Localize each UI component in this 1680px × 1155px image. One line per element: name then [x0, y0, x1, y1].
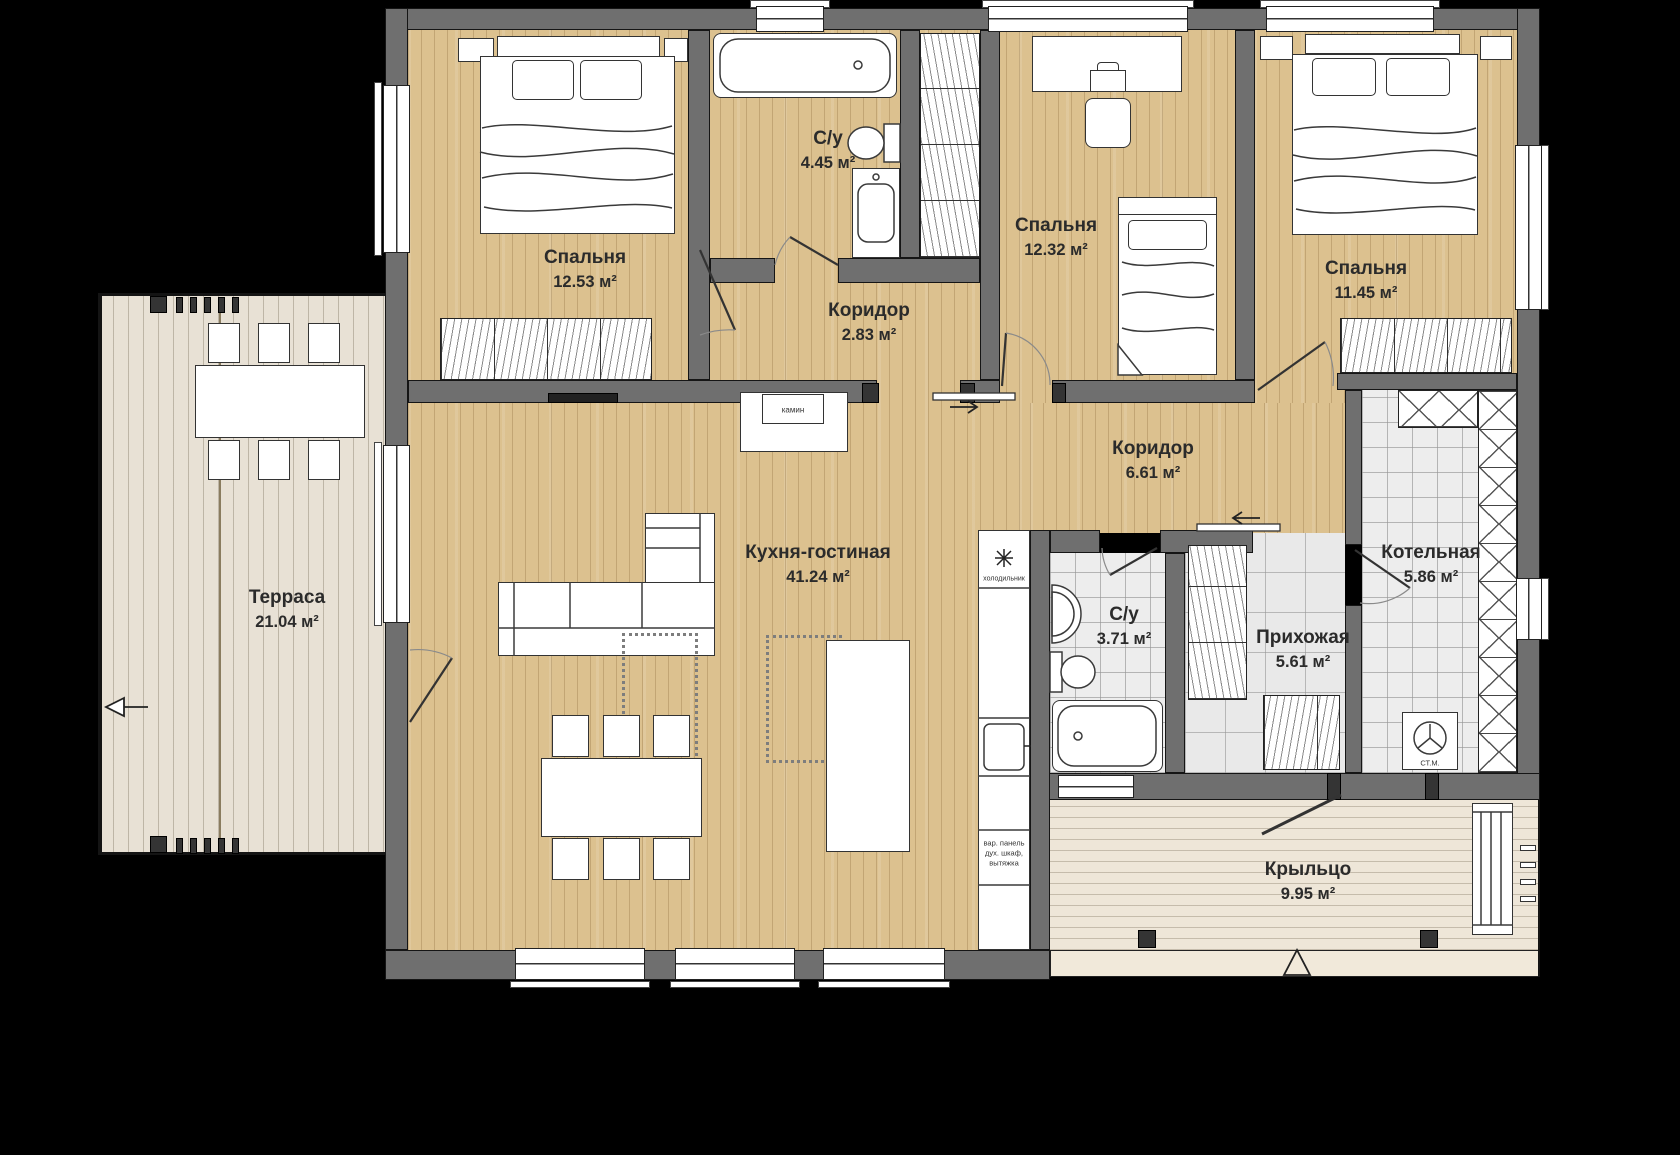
bed-headboard: [1118, 197, 1217, 215]
terrace-baluster: [176, 838, 183, 854]
window-living-south-1: [515, 948, 645, 980]
hallway-cabinet: [1263, 695, 1340, 770]
terrace-chair: [308, 323, 340, 363]
wall-bedroom3-south: [1337, 373, 1517, 390]
room-label-hallway: Прихожая 5.61 м²: [1256, 625, 1350, 673]
terrace-chair: [258, 440, 290, 480]
nightstand: [1480, 36, 1512, 60]
terrace-edge-left: [98, 293, 102, 855]
kitchen-living-floor: [408, 403, 1030, 950]
terrace-baluster: [204, 838, 211, 854]
dining-chair: [603, 838, 640, 880]
hallway-wardrobe: [1188, 545, 1247, 700]
wall-post: [1327, 773, 1341, 800]
wall-bathroom-top-south-b: [838, 258, 980, 283]
porch-post: [1138, 930, 1156, 948]
boiler-equipment-zone: [1398, 390, 1478, 428]
pillow: [580, 60, 642, 100]
room-label-corridor-main: Коридор 6.61 м²: [1112, 436, 1194, 484]
window-living-south-3: [823, 948, 945, 980]
pillow: [512, 60, 574, 100]
porch-step-mark: [1520, 862, 1536, 868]
porch-stairs: [1472, 803, 1513, 935]
terrace-chair: [308, 440, 340, 480]
bed-headboard: [1305, 34, 1460, 54]
wall-bathroom-top-east: [900, 30, 920, 258]
terrace-dining-table: [195, 365, 365, 438]
window-sill: [374, 82, 382, 256]
terrace-post: [150, 836, 167, 853]
dining-chair: [653, 838, 690, 880]
porch-edge-right: [1538, 800, 1540, 977]
fireplace-label: камин: [782, 406, 805, 415]
room-label-bedroom1: Спальня 12.53 м²: [544, 245, 626, 293]
window-boiler-east: [1515, 578, 1542, 640]
dining-chair: [653, 715, 690, 757]
washing-machine-label: СТ.М.: [1420, 759, 1439, 768]
wall-east: [1517, 8, 1540, 800]
wall-mid-right: [1052, 380, 1255, 403]
room-label-bathroom-top: С/у 4.45 м²: [801, 126, 855, 174]
room-label-bathroom-bottom: С/у 3.71 м²: [1097, 602, 1151, 650]
window-sill: [818, 981, 950, 988]
wall-post: [960, 383, 975, 403]
terrace-baluster: [176, 297, 183, 313]
wall-bathroom-top-south-a: [710, 258, 775, 283]
floor-plan: камин холодильник вар. панель дух. шкаф,…: [0, 0, 1680, 1155]
porch-step-mark: [1520, 845, 1536, 851]
window-bathroom-top: [756, 6, 824, 32]
terrace-baluster: [218, 838, 225, 854]
window-living-south-2: [675, 948, 795, 980]
terrace-post: [150, 296, 167, 313]
bed-double: [480, 56, 675, 234]
closet: [920, 33, 980, 258]
wardrobe: [440, 318, 652, 380]
wall-post: [1052, 383, 1066, 403]
boiler-shaft-zone: [1478, 390, 1517, 773]
pillow: [1128, 220, 1207, 250]
window-sill: [670, 981, 800, 988]
window-bedroom1-west: [383, 85, 410, 253]
bed-headboard: [497, 36, 660, 58]
wall-bedroom2-west: [980, 30, 1000, 380]
desk-chair: [1085, 98, 1131, 148]
wall-bedroom2-east: [1235, 30, 1255, 380]
nightstand: [1260, 36, 1293, 60]
wall-post: [862, 383, 879, 403]
room-label-boiler: Котельная 5.86 м²: [1381, 540, 1480, 588]
window-bathroom-bottom-south: [1058, 775, 1134, 798]
sofa-chaise: [645, 513, 715, 587]
terrace-edge-top: [98, 293, 385, 296]
printer-base: [1090, 70, 1126, 92]
kitchen-counter: [978, 530, 1030, 950]
room-label-terrace: Терраса 21.04 м²: [249, 585, 325, 633]
room-label-kitchen-living: Кухня-гостиная 41.24 м²: [745, 540, 891, 588]
window-sill: [510, 981, 650, 988]
terrace-baluster: [190, 297, 197, 313]
bathroom-vanity: [852, 168, 900, 258]
fridge-label: холодильник: [983, 576, 1025, 583]
bathtub: [713, 33, 897, 98]
pillow: [1386, 58, 1450, 96]
bathtub: [1052, 700, 1163, 772]
porch-post: [1420, 930, 1438, 948]
terrace-chair: [208, 440, 240, 480]
kitchen-island: [826, 640, 910, 852]
terrace-baluster: [232, 297, 239, 313]
terrace-baluster: [190, 838, 197, 854]
terrace-baluster: [218, 297, 225, 313]
wall-corridor-south-a: [1050, 530, 1100, 553]
window-living-west: [383, 445, 410, 623]
window-sill: [374, 442, 382, 626]
wall-bedroom1-east: [688, 30, 710, 380]
porch-step: [1050, 950, 1540, 977]
tv: [548, 393, 618, 403]
dining-table: [541, 758, 702, 837]
room-label-corridor-small: Коридор 2.83 м²: [828, 298, 910, 346]
wardrobe: [1340, 318, 1512, 373]
wall-post: [1425, 773, 1439, 800]
room-label-bedroom3: Спальня 11.45 м²: [1325, 256, 1407, 304]
wall-boiler-west-upper: [1345, 390, 1362, 545]
window-bedroom3-east: [1515, 145, 1542, 310]
wall-kitchen-east: [1030, 530, 1050, 950]
room-label-porch: Крыльцо 9.95 м²: [1265, 857, 1351, 905]
wall-bathroom-bottom-east: [1165, 553, 1185, 773]
pillow: [1312, 58, 1376, 96]
terrace-edge-bottom: [98, 852, 385, 855]
terrace-chair: [258, 323, 290, 363]
dining-chair: [603, 715, 640, 757]
dining-chair: [552, 838, 589, 880]
window-bedroom3-north: [1266, 6, 1434, 32]
dining-chair: [552, 715, 589, 757]
window-sill: [1541, 578, 1549, 640]
terrace-chair: [208, 323, 240, 363]
appliances-label: вар. панель дух. шкаф, вытяжка: [984, 838, 1025, 867]
window-sill: [1541, 145, 1549, 310]
porch-step-mark: [1520, 879, 1536, 885]
window-bedroom2: [988, 6, 1188, 32]
terrace-baluster: [232, 838, 239, 854]
room-label-bedroom2: Спальня 12.32 м²: [1015, 213, 1097, 261]
porch-step-mark: [1520, 896, 1536, 902]
terrace-baluster: [204, 297, 211, 313]
